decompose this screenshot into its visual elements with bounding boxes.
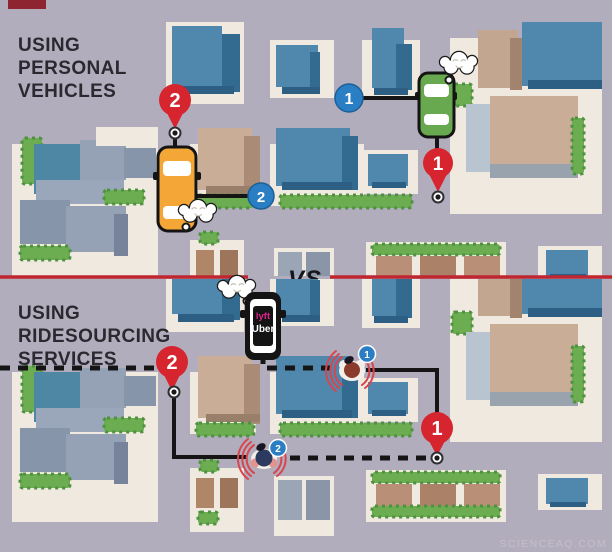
pin-anchor-center	[171, 389, 176, 394]
scene-title-line: PERSONAL	[18, 58, 127, 79]
badge-number: 2	[275, 444, 281, 455]
lyft-logo: lyft	[256, 311, 271, 322]
corner-decoration	[8, 0, 46, 9]
infographic: USING PERSONAL VEHICLES 1 1	[0, 0, 612, 552]
car-windshield	[424, 84, 449, 97]
rider1-badge: 1	[359, 346, 376, 363]
sidewalk-strip	[96, 127, 158, 146]
scene-title-line: SERVICES	[18, 349, 117, 370]
pin-anchor-center	[172, 130, 177, 135]
infographic-canvas: USING PERSONAL VEHICLES 1 1	[0, 0, 612, 552]
person-head	[344, 362, 360, 378]
rider2-badge: 2	[248, 183, 274, 209]
exhaust-puff	[446, 77, 453, 84]
exhaust-puff	[183, 224, 190, 231]
badge-number: 1	[345, 91, 354, 108]
scene-title-line: USING	[18, 35, 80, 56]
watermark-text: SCIENCEAQ.COM	[500, 538, 607, 550]
scene-title-line: VEHICLES	[18, 81, 116, 102]
pin-number: 1	[433, 154, 444, 175]
car-windshield	[163, 161, 191, 176]
badge-number: 2	[257, 189, 265, 206]
pin-anchor-center	[434, 455, 439, 460]
car-rear-window	[424, 114, 449, 125]
pin-number: 2	[169, 90, 180, 112]
scene-title-line: RIDESOURCING	[18, 326, 171, 347]
pin-number: 1	[431, 418, 442, 440]
rider2-badge: 2	[270, 440, 287, 457]
uber-logo: Uber	[252, 324, 275, 335]
pin-anchor-center	[435, 194, 440, 199]
pin-number: 2	[166, 352, 177, 374]
rideshare-car-icon: lyft Uber	[240, 292, 286, 360]
rider1-badge: 1	[335, 84, 363, 112]
badge-number: 1	[364, 350, 370, 361]
scene-title-line: USING	[18, 303, 80, 324]
